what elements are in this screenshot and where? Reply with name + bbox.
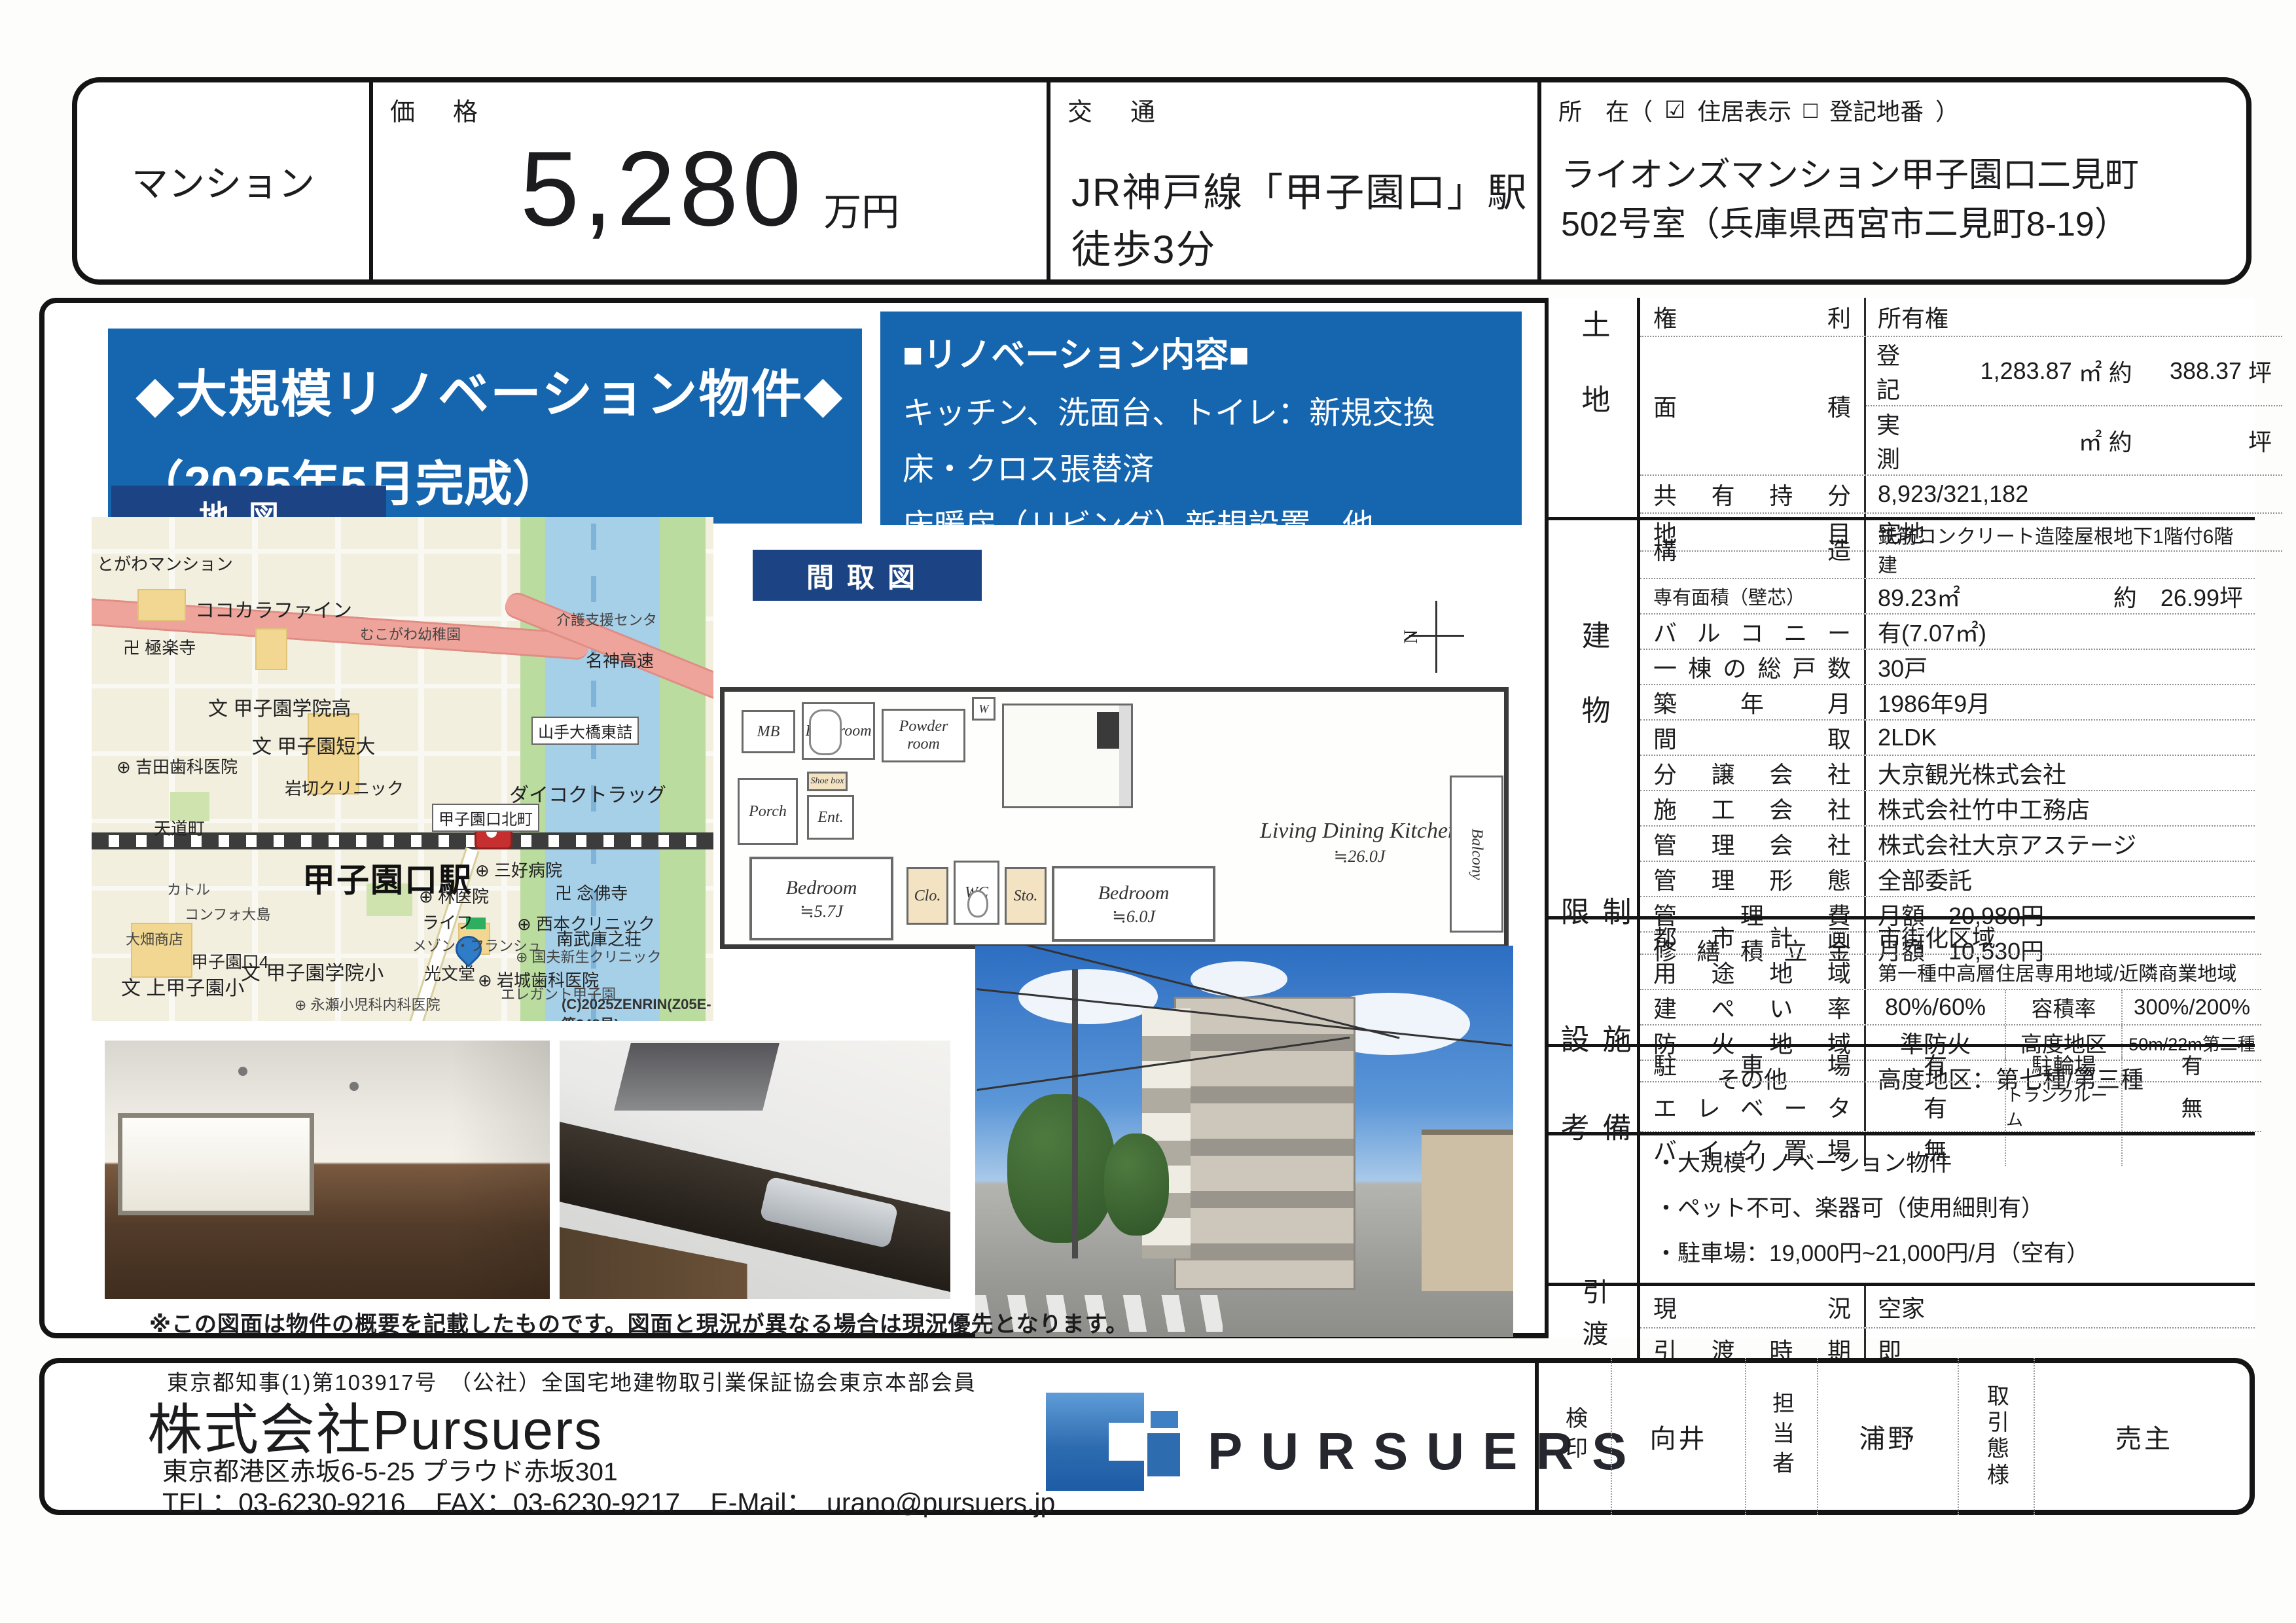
access-cell: 交 通 JR神戸線「甲子園口」駅 徒歩3分 — [1050, 82, 1541, 279]
restriction-label: 用途地域 — [1653, 955, 1851, 989]
building-row-label: 管理形態 — [1653, 862, 1851, 896]
section-title-remarks: 備考 — [1551, 1113, 1635, 1260]
building-row-value: 有(7.07㎡) — [1866, 615, 2255, 649]
building-row-label: 管理会社 — [1653, 827, 1851, 861]
unit-tsubo: 坪 — [2248, 354, 2272, 388]
unit-m2: ㎡ — [2079, 354, 2102, 388]
map-label: 名神高速 — [586, 648, 654, 672]
land-rights-value: 所有権 — [1866, 298, 2282, 336]
facility-value: 有 — [1866, 1082, 2005, 1131]
unit-m2: ㎡ — [2079, 423, 2102, 457]
floorplan-tag: 間取図 — [753, 550, 982, 601]
property-details-table: 土地 権利 所有権 面積 登記 1,283.87 ㎡ 約 388.37 坪 — [1545, 298, 2255, 1338]
section-title-land: 土地 — [1572, 310, 1614, 459]
building-row-label: 築年月 — [1653, 685, 1851, 719]
land-area-reg-m2: 1,283.87 — [1927, 357, 2072, 385]
facility-value: 有 — [1866, 1047, 2005, 1081]
map-label: ⊕ 国夫新生クリニック — [516, 946, 662, 967]
map-label: ⊕ 三好病院 — [475, 857, 562, 882]
building-row-label: 一棟の総戸数 — [1653, 650, 1851, 684]
map-label: ライフ — [422, 910, 473, 934]
unit-tsubo: 坪 — [2248, 423, 2272, 457]
land-area-reg-key: 登記 — [1876, 337, 1920, 405]
building-row-value: 大京観光株式会社 — [1866, 756, 2255, 790]
restriction-value: 市街化区域 — [1866, 919, 2261, 954]
room-ldk: Living Dining Kitchen≒26.0J — [1248, 796, 1471, 888]
map-copyright: (C)2025ZENRIN(Z05E-第348号) — [562, 996, 713, 1021]
room-powder: Powder room — [882, 709, 965, 762]
land-share-value: 8,923/321,182 — [1866, 476, 2282, 512]
room-mb: MB — [742, 710, 795, 753]
remark-note: ・駐車場：19,000円~21,000円/月（空有） — [1655, 1235, 2240, 1268]
map-label: 天道町 — [154, 815, 205, 840]
company-contact: TEL：03-6230-9216 FAX：03-6230-9217 E-Mail… — [162, 1480, 1055, 1520]
map-label: とがわマンション — [97, 551, 233, 575]
land-share-label: 共有持分 — [1653, 477, 1851, 511]
price-label: 価 格 — [390, 92, 484, 128]
wall-shading — [105, 1041, 550, 1299]
map-label: カトル — [167, 878, 210, 899]
building-row-label: バルコニー — [1653, 615, 1851, 649]
map-label: 文 甲子園学院高 — [208, 692, 351, 721]
building-row-value: 全部委託 — [1866, 862, 2255, 896]
section-restrictions: 制限 都市計画 市街化区域 用途地域 第一種中高層住居専用地域/近隣商業地域 建… — [1549, 916, 2255, 1044]
section-facilities: 施設 駐車場 有 駐輪場 有 エレベータ 有 トランクルーム 無 バイク置場 無 — [1549, 1044, 2255, 1132]
renovation-item: キッチン、洗面台、トイレ：新規交換 — [903, 387, 1522, 433]
building-row-value: 1986年9月 — [1866, 685, 2255, 719]
section-title-handover: 引渡 — [1574, 1278, 1612, 1362]
room-kitchen — [1002, 704, 1133, 808]
room-bath: Bath room — [802, 702, 875, 760]
checkbox-checked-icon: ☑ — [1664, 96, 1685, 124]
map-label: 卍 極楽寺 — [123, 635, 196, 659]
stamp-role-label: 担当者 — [1745, 1358, 1817, 1515]
map-label: むこがわ幼稚園 — [360, 623, 461, 644]
map-label: 山手大橋東詰 — [531, 717, 639, 745]
kitchen-photo — [560, 1041, 950, 1299]
stamp-type-label: 取引態様 — [1958, 1358, 2034, 1515]
renovation-item: 床暖房（リビング）新規設置 他 — [903, 499, 1522, 545]
disclaimer-note: ※この図面は物件の概要を記載したものです。図面と現況が異なる場合は現況優先となり… — [149, 1306, 1128, 1338]
tel: TEL：03-6230-9216 — [162, 1480, 406, 1520]
logo-block-small1 — [1151, 1411, 1178, 1428]
map-label: 介護支援センタ — [556, 609, 657, 630]
building-row-label: 構造 — [1653, 532, 1851, 566]
email: E-Mail： urano@pursuers.jp — [710, 1480, 1055, 1520]
building-row-label: 専有面積（壁芯） — [1653, 582, 1851, 610]
location-cell: 所 在（ ☑ 住居表示 □ 登記地番 ） ライオンズマンション甲子園口二見町 5… — [1541, 82, 2246, 279]
building-row-label: 分譲会社 — [1653, 756, 1851, 790]
highlight-line1: ◆大規模リノベーション物件◆ — [135, 353, 862, 427]
restriction-value: 第一種中高層住居専用地域/近隣商業地域 — [1866, 955, 2261, 989]
building-row-value: 89.23㎡ — [1878, 579, 1960, 613]
facility-label: 駐車場 — [1653, 1047, 1851, 1081]
map-label: ⊕ 西本クリニック — [517, 911, 655, 935]
riverbank-right — [660, 517, 706, 1021]
building-exterior-photo — [975, 946, 1513, 1337]
location-unchecked-text: 登記地番 — [1829, 93, 1924, 127]
facility-label2: トランクルーム — [2005, 1082, 2123, 1131]
map-label: 岩切クリニック — [285, 776, 404, 800]
bathtub-icon — [809, 709, 842, 755]
map-label: 文 上甲子園小 — [121, 972, 244, 1001]
room-washer: W — [972, 697, 996, 721]
restriction-label: 都市計画 — [1653, 919, 1851, 954]
building-row-value: 株式会社竹中工務店 — [1866, 791, 2255, 825]
access-value: JR神戸線「甲子園口」駅 徒歩3分 — [1071, 161, 1537, 275]
land-rights-label: 権利 — [1653, 300, 1851, 334]
renovation-item: 床・クロス張替済 — [903, 443, 1522, 489]
map-label: ココカラファイン — [195, 594, 352, 623]
tree — [1104, 1133, 1169, 1235]
map-label: 甲子園口4 — [191, 949, 268, 973]
tree — [1007, 1094, 1115, 1243]
restriction-label: 建ぺい率 — [1653, 990, 1851, 1024]
toilet-icon — [967, 890, 988, 918]
room-porch: Porch — [738, 778, 798, 845]
building-row-value2: 約 26.99坪 — [2113, 579, 2243, 613]
stamp-name1: 向井 — [1611, 1358, 1745, 1515]
section-title-facilities: 施設 — [1551, 1024, 1635, 1109]
section-title-restrictions: 制限 — [1551, 897, 1635, 1021]
renovation-title: ■リノベーション内容■ — [903, 327, 1522, 376]
utility-pole — [1072, 969, 1078, 1259]
map-label: 文 甲子園短大 — [252, 730, 375, 759]
room-shoebox: Shoe box — [807, 772, 848, 791]
remark-note: ・ペット不可、楽器可（使用細則有） — [1655, 1190, 2240, 1223]
building-row-value: 鉄筋コンクリート造陸屋根地下1階付6階建 — [1866, 520, 2255, 578]
price-cell: 価 格 5,280 万円 — [373, 82, 1050, 279]
facility-value2: 無 — [2123, 1082, 2261, 1131]
map-label: ⊕ 吉田歯科医院 — [117, 754, 238, 778]
section-handover: 引渡 現況 空家 引渡時期 即 — [1549, 1283, 2255, 1370]
access-label: 交 通 — [1067, 92, 1162, 128]
logo-notch — [1109, 1423, 1144, 1461]
header-box: マンション 価 格 5,280 万円 交 通 JR神戸線「甲子園口」駅 徒歩3分… — [72, 77, 2251, 285]
renovation-box: ■リノベーション内容■ キッチン、洗面台、トイレ：新規交換 床・クロス張替済 床… — [880, 312, 1522, 525]
north-arrow-icon: N — [1404, 601, 1469, 676]
pursuers-logo-icon — [1046, 1393, 1183, 1501]
property-category: マンション — [77, 82, 373, 279]
stamp-check-label: 検印 — [1539, 1358, 1611, 1515]
building-row-label: 間取 — [1653, 721, 1851, 755]
land-area-act-key: 実測 — [1876, 406, 1920, 474]
section-land: 土地 権利 所有権 面積 登記 1,283.87 ㎡ 約 388.37 坪 — [1549, 298, 2255, 517]
price-value: 5,280 — [520, 128, 805, 250]
location-line2: 502号室（兵庫県西宮市二見町8-19） — [1561, 200, 2139, 249]
location-paren-close: ） — [1935, 93, 1959, 127]
facility-label: エレベータ — [1653, 1090, 1851, 1124]
map-label: ⊕ 林医院 — [419, 883, 489, 908]
section-remarks: 備考 ・大規模リノベーション物件 ・ペット不可、楽器可（使用細則有） ・駐車場：… — [1549, 1132, 2255, 1283]
room-bedroom2: Bedroom≒6.0J — [1052, 866, 1215, 942]
facility-label2: 駐輪場 — [2005, 1047, 2123, 1081]
map-image: 甲子園口駅 とがわマンション ココカラファイン 卍 極楽寺 むこがわ幼稚園 介護… — [92, 517, 713, 1021]
map-label: 光文堂 — [424, 961, 475, 985]
room-wc: WC — [954, 861, 999, 925]
restriction-label2: 容積率 — [2005, 990, 2123, 1024]
stamp-table: 検印 向井 担当者 浦野 取引態様 売主 — [1535, 1358, 2253, 1515]
room-bedroom1: Bedroom≒5.7J — [749, 857, 893, 940]
building-row-value: 2LDK — [1866, 721, 2255, 755]
map-building-block — [255, 628, 287, 670]
location-line1: ライオンズマンション甲子園口二見町 — [1561, 151, 2139, 200]
stamp-name2: 浦野 — [1817, 1358, 1958, 1515]
section-title-building: 建物 — [1572, 620, 1614, 770]
facility-value2: 有 — [2123, 1047, 2261, 1081]
handover-value: 空家 — [1866, 1286, 2255, 1327]
building-row-value: 30戸 — [1866, 650, 2255, 684]
fax: FAX：03-6230-9217 — [436, 1480, 681, 1520]
price-unit: 万円 — [823, 181, 899, 236]
restriction-value: 80%/60% — [1866, 990, 2005, 1024]
living-room-photo — [105, 1041, 550, 1299]
handover-label: 現況 — [1653, 1290, 1851, 1324]
cloud — [1191, 961, 1287, 997]
room-storage: Sto. — [1005, 867, 1047, 925]
logo-block-small2 — [1147, 1433, 1180, 1476]
map-label: 卍 念佛寺 — [555, 880, 628, 904]
range-hood — [614, 1043, 779, 1111]
building-row-label: 施工会社 — [1653, 791, 1851, 825]
approx: 約 — [2109, 354, 2132, 388]
kitchen-counter — [1119, 705, 1131, 806]
location-label: 所 在（ — [1558, 93, 1653, 127]
location-checked-text: 住居表示 — [1697, 93, 1791, 127]
land-area-label: 面積 — [1653, 389, 1851, 423]
map-label: 甲子園口北町 — [432, 804, 539, 832]
map-label: ⊕ 永瀬小児科内科医院 — [295, 993, 440, 1014]
stamp-type-value: 売主 — [2034, 1358, 2253, 1515]
room-closet: Clo. — [906, 867, 948, 925]
room-entrance: Ent. — [807, 795, 854, 840]
land-area-reg-tsubo: 388.37 — [2139, 357, 2242, 385]
map-building-block — [137, 589, 186, 621]
restriction-value2: 300%/200% — [2123, 990, 2261, 1024]
north-letter: N — [1400, 630, 1422, 644]
remark-note: ・大規模リノベーション物件 — [1655, 1145, 2240, 1178]
floorplan-image: MB Bath room Powder room W Porch Shoe bo… — [720, 687, 1509, 949]
map-label: コンフォ大島 — [185, 903, 270, 924]
map-label: 大畑商店 — [126, 928, 183, 949]
room-balcony: Balcony — [1450, 776, 1503, 933]
approx: 約 — [2109, 423, 2132, 457]
checkbox-unchecked-icon: □ — [1803, 96, 1818, 124]
section-building: 建物 構造 鉄筋コンクリート造陸屋根地下1階付6階建 専有面積（壁芯） 89.2… — [1549, 517, 2255, 916]
neighbor-building — [1422, 1130, 1513, 1291]
building-row-value: 株式会社大京アステージ — [1866, 827, 2255, 861]
